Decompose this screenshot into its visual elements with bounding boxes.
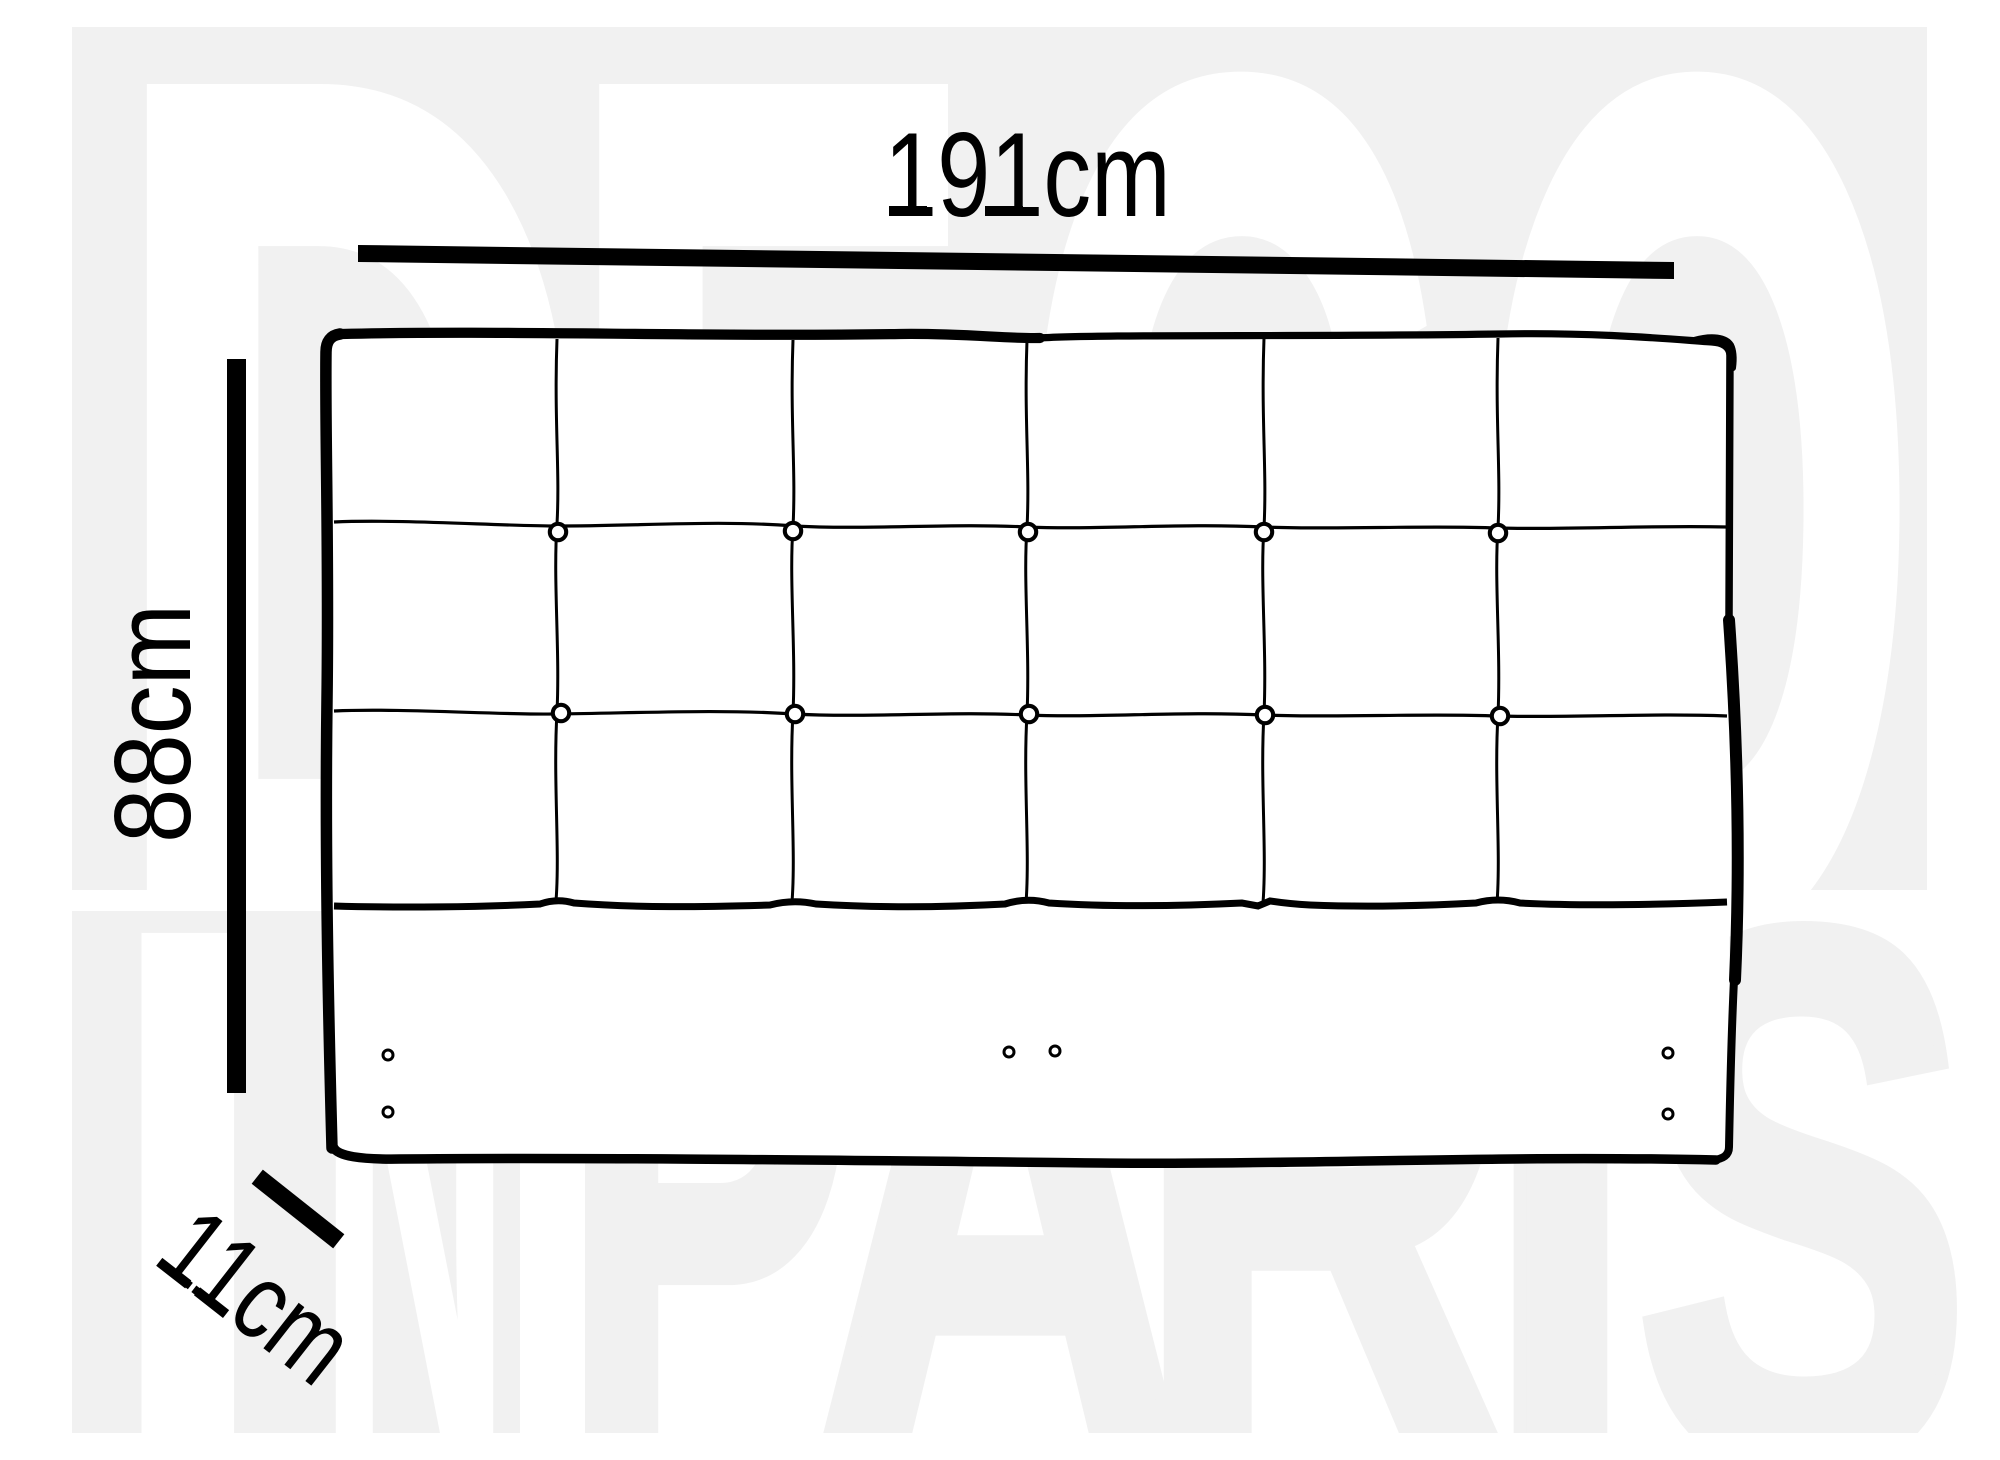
svg-text:11cm: 11cm [139, 1185, 377, 1408]
svg-text:88cm: 88cm [91, 604, 213, 843]
svg-text:191cm: 191cm [884, 108, 1171, 242]
